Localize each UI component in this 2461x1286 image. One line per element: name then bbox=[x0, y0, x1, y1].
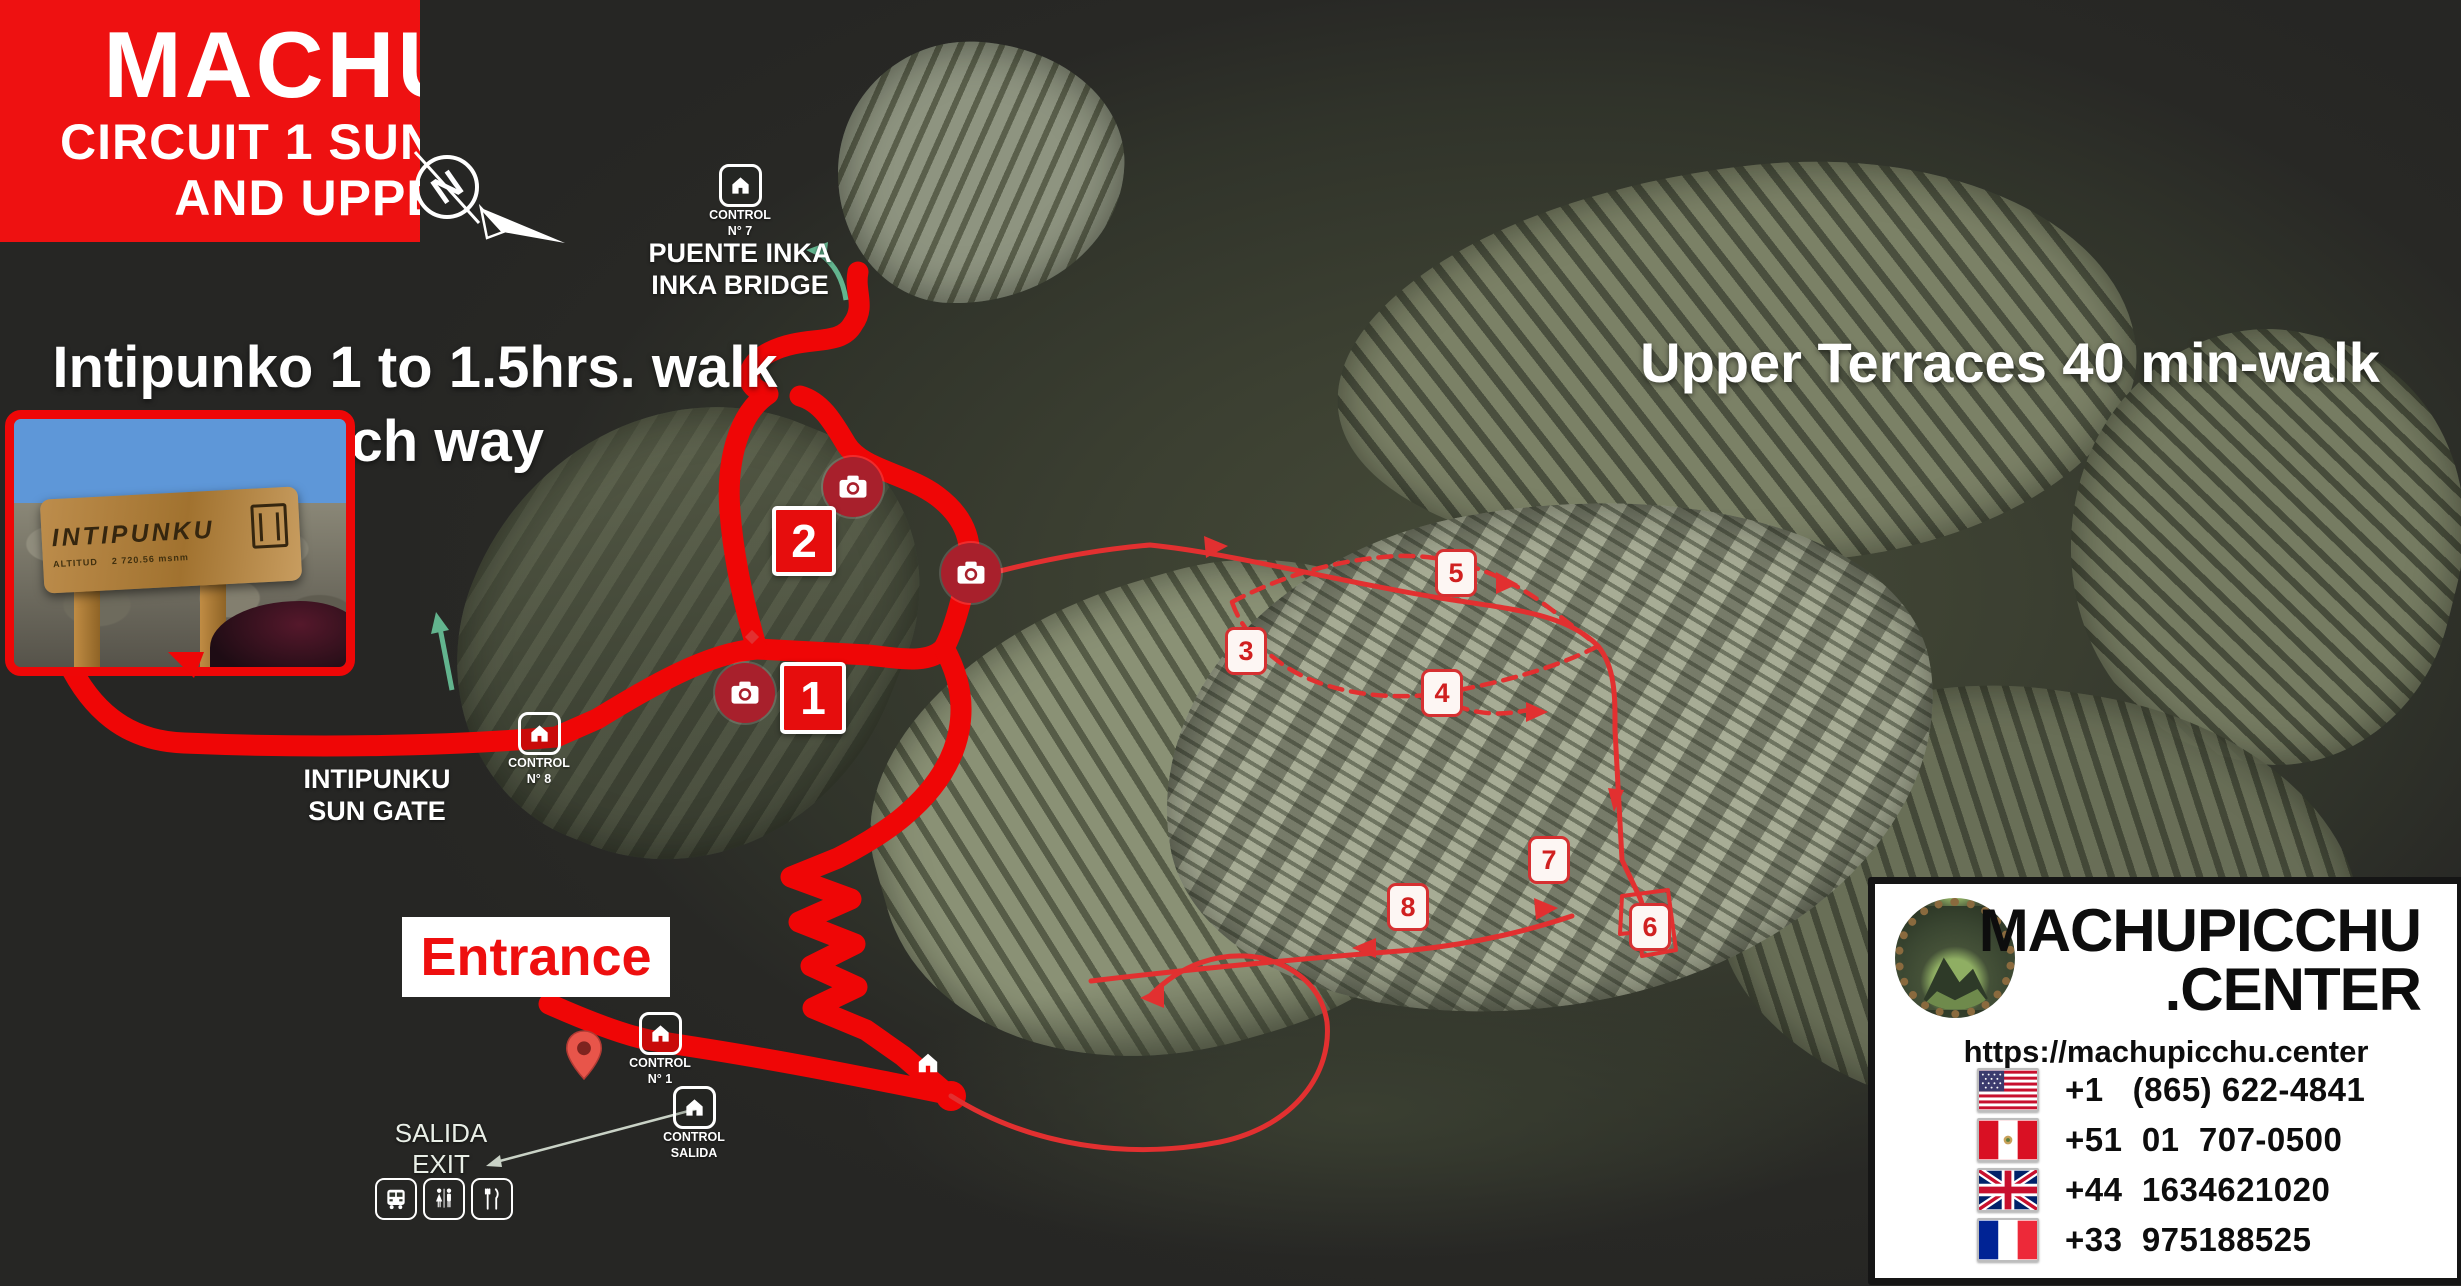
marker-1: 1 bbox=[780, 662, 846, 734]
phone-number-uk[interactable]: +44 1634621020 bbox=[2065, 1171, 2330, 1209]
compass: N bbox=[385, 130, 605, 260]
control-house-icon bbox=[719, 164, 762, 207]
bus-icon bbox=[375, 1178, 417, 1220]
usa-flag-icon bbox=[1977, 1068, 2039, 1112]
machupicchu-circuit-map: N CONTROL N° 7 PUENTE INKA INKA BRIDGE C… bbox=[0, 0, 2461, 1286]
intipunku-wood-sign: INTIPUNKU ALTITUD 2 720.56 msnm bbox=[40, 486, 303, 593]
door-icon bbox=[250, 503, 288, 549]
uk-flag-icon bbox=[1977, 1168, 2039, 1212]
restaurant-icon bbox=[471, 1178, 513, 1220]
inka-bridge-label: PUENTE INKA INKA BRIDGE bbox=[600, 238, 880, 302]
marker-4: 4 bbox=[1421, 669, 1463, 717]
marker-6: 6 bbox=[1629, 903, 1671, 951]
sun-gate-label: INTIPUNKU SUN GATE bbox=[237, 764, 517, 828]
amenities-icon-row bbox=[375, 1178, 513, 1220]
phone-row-france[interactable]: +33 975188525 bbox=[1977, 1218, 2312, 1262]
website-url[interactable]: https://machupicchu.center bbox=[1875, 1034, 2457, 1070]
brand-contact-card: MACHUPICCHU .CENTER https://machupicchu.… bbox=[1868, 877, 2461, 1285]
restroom-icon bbox=[423, 1178, 465, 1220]
phone-row-usa[interactable]: +1 (865) 622-4841 bbox=[1977, 1068, 2365, 1112]
control-label: CONTROL bbox=[663, 1131, 725, 1145]
control-7-station: CONTROL N° 7 bbox=[692, 164, 788, 239]
intipunku-sign-photo: INTIPUNKU ALTITUD 2 720.56 msnm bbox=[5, 410, 355, 676]
photo-spot-camera-icon bbox=[941, 543, 1001, 603]
dashed-circuit-route bbox=[1232, 556, 1598, 714]
marker-3: 3 bbox=[1225, 627, 1267, 675]
control-number: N° 8 bbox=[527, 773, 551, 787]
intipunko-walk-time-label: Intipunko 1 to 1.5hrs. walk bbox=[0, 334, 830, 401]
control-number: N° 7 bbox=[728, 225, 752, 239]
route-direction-arrows bbox=[745, 475, 1624, 1008]
control-house-icon bbox=[518, 712, 561, 755]
control-number: N° 1 bbox=[648, 1073, 672, 1087]
france-flag-icon bbox=[1977, 1218, 2039, 1262]
control-label: CONTROL bbox=[709, 209, 771, 223]
salida-exit-label: SALIDA EXIT bbox=[341, 1118, 541, 1179]
photo-spot-camera-icon bbox=[715, 663, 775, 723]
control-house-icon bbox=[673, 1086, 716, 1129]
gate-house-icon bbox=[915, 1050, 941, 1081]
control-1-station: CONTROL N° 1 bbox=[612, 1012, 708, 1087]
marker-2: 2 bbox=[772, 506, 836, 576]
marker-5: 5 bbox=[1435, 549, 1477, 597]
control-house-icon bbox=[639, 1012, 682, 1055]
marker-7: 7 bbox=[1528, 836, 1570, 884]
phone-row-uk[interactable]: +44 1634621020 bbox=[1977, 1168, 2330, 1212]
control-salida-station: CONTROL SALIDA bbox=[646, 1086, 742, 1161]
upper-terraces-walk-label: Upper Terraces 40 min-walk bbox=[1560, 330, 2460, 395]
phone-number-usa[interactable]: +1 (865) 622-4841 bbox=[2065, 1071, 2365, 1109]
compass-rose-icon: N bbox=[385, 130, 605, 260]
brand-name: MACHUPICCHU .CENTER bbox=[1979, 902, 2421, 1020]
control-label: CONTROL bbox=[629, 1057, 691, 1071]
phone-number-peru[interactable]: +51 01 707-0500 bbox=[2065, 1121, 2342, 1159]
inset-pointer-tail bbox=[168, 652, 204, 678]
entrance-map-pin bbox=[561, 1026, 607, 1089]
control-label: CONTROL bbox=[508, 757, 570, 771]
peru-flag-icon bbox=[1977, 1118, 2039, 1162]
control-number: SALIDA bbox=[671, 1147, 718, 1161]
marker-8: 8 bbox=[1387, 883, 1429, 931]
phone-row-peru[interactable]: +51 01 707-0500 bbox=[1977, 1118, 2342, 1162]
entrance-label: Entrance bbox=[402, 917, 670, 997]
phone-number-france[interactable]: +33 975188525 bbox=[2065, 1221, 2312, 1259]
